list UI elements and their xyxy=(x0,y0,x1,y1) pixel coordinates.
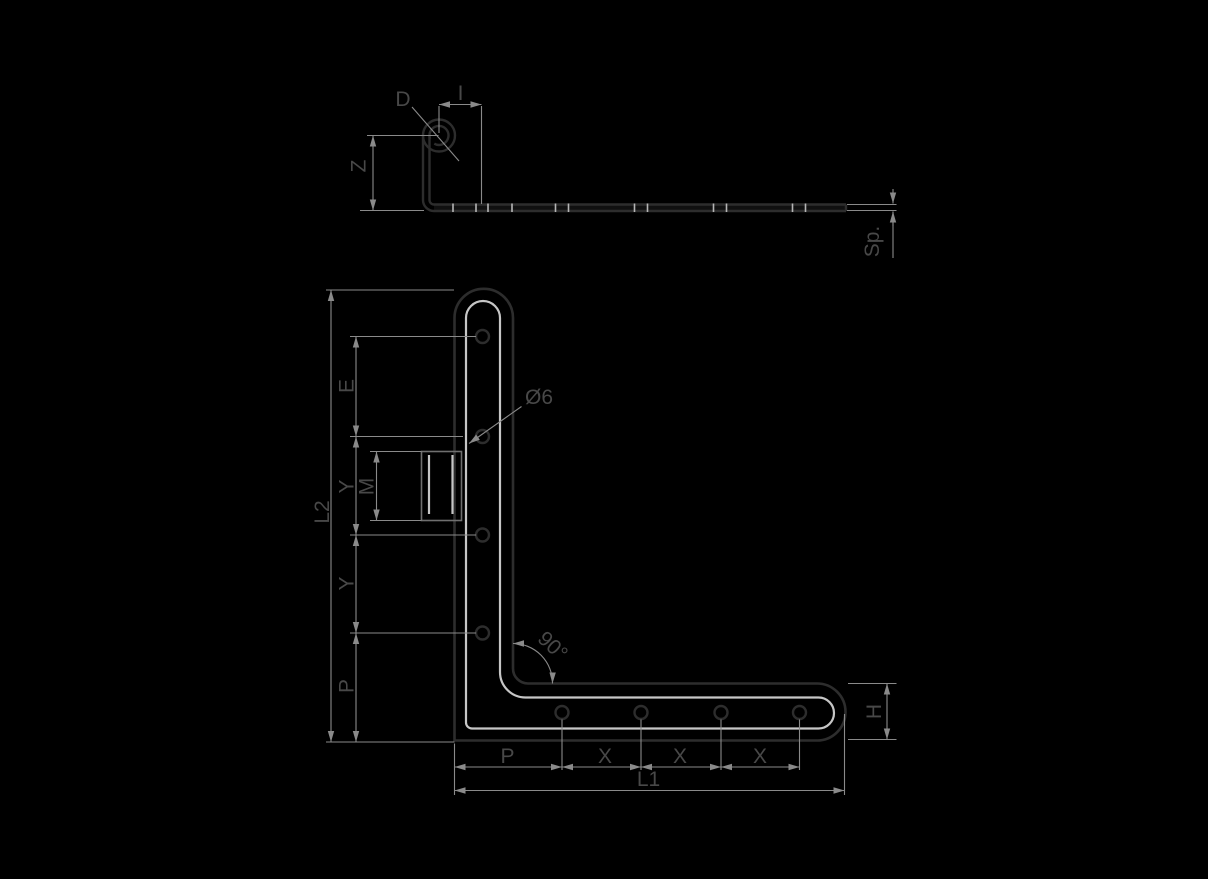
hole xyxy=(476,529,489,542)
dim-label-curl-d: D xyxy=(395,88,410,111)
dim-label-hole-diameter: Ø6 xyxy=(525,386,553,409)
dim-label-x3: X xyxy=(753,745,767,768)
bracket-outline xyxy=(455,289,846,741)
hole xyxy=(476,430,489,443)
dim-label-x1: X xyxy=(598,745,612,768)
dim-label-offset-i: I xyxy=(458,82,464,105)
hole xyxy=(715,706,728,719)
front-view: Ø6 90° L2 E Y Y P M xyxy=(311,289,897,795)
hole xyxy=(635,706,648,719)
dim-label-l2: L2 xyxy=(311,500,334,523)
technical-drawing-canvas: D I Z Sp. xyxy=(0,0,1208,879)
hole xyxy=(476,627,489,640)
hole xyxy=(793,706,806,719)
bracket-edge-highlight xyxy=(466,301,834,729)
dim-label-height-z: Z xyxy=(348,159,371,172)
dim-label-p-left: P xyxy=(336,679,359,693)
leg-inner-edge xyxy=(430,136,435,205)
dim-label-y2: Y xyxy=(336,576,359,590)
dim-label-h: H xyxy=(863,704,886,719)
dim-label-m: M xyxy=(356,478,379,496)
side-view: D I Z Sp. xyxy=(348,82,897,258)
curl-diameter-leader xyxy=(412,107,459,161)
hole xyxy=(476,330,489,343)
dim-label-thickness-sp: Sp. xyxy=(861,226,884,258)
dim-label-bend-angle: 90° xyxy=(533,627,572,665)
dim-label-x2: X xyxy=(673,745,687,768)
bracket-drawing: D I Z Sp. xyxy=(0,0,1208,879)
dim-label-e: E xyxy=(336,379,359,393)
bar-body xyxy=(434,205,846,211)
dim-label-p-bottom: P xyxy=(500,745,514,768)
dim-label-l1: L1 xyxy=(637,768,660,791)
hole xyxy=(556,706,569,719)
